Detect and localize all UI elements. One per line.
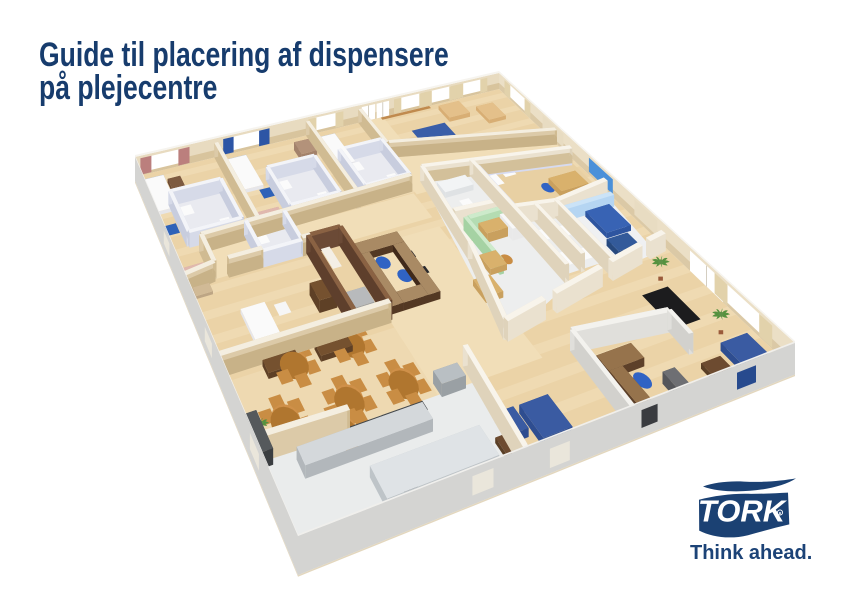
svg-text:R: R [779,511,782,515]
svg-text:TORK: TORK [698,494,788,529]
